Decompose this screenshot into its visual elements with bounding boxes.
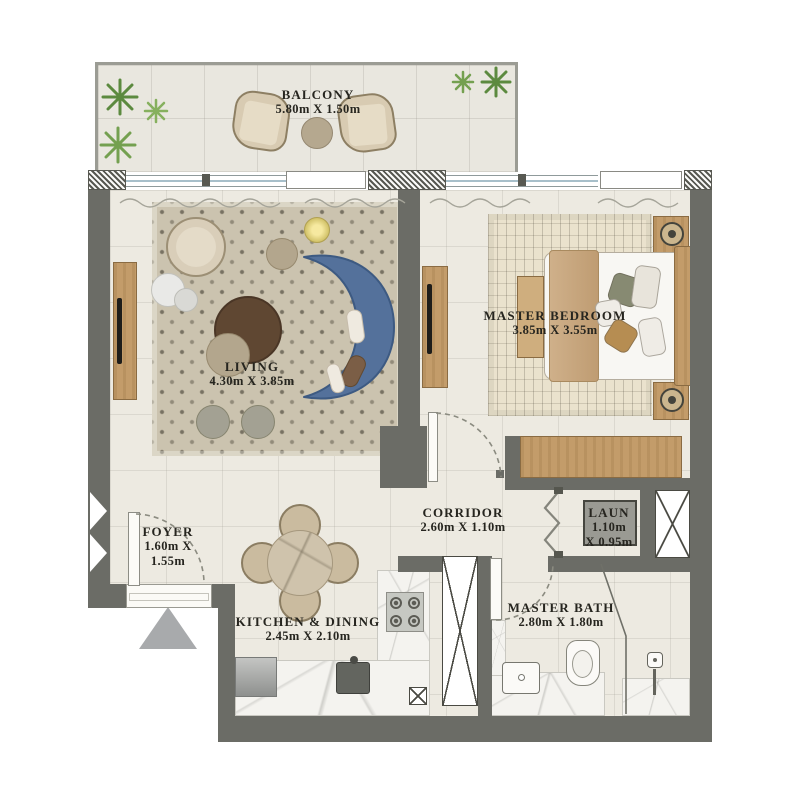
room-dims: 1.60m X xyxy=(143,539,194,554)
wardrobe xyxy=(520,436,682,478)
wall-corridor-bottom xyxy=(398,556,442,572)
shaft-x-icon xyxy=(442,556,478,706)
wall-bath-top xyxy=(548,556,690,572)
room-label-master-bedroom: MASTER BEDROOM 3.85m X 3.55m xyxy=(484,308,627,338)
room-label-living: LIVING 4.30m X 3.85m xyxy=(209,359,294,389)
entry-door xyxy=(128,512,140,586)
room-label-laundry: LAUN 1.10m X 0.95m xyxy=(585,505,632,550)
vanity-sink-icon xyxy=(502,662,540,694)
floor-plan: BALCONY 5.80m X 1.50m LIVING 4.30m X 3.8… xyxy=(0,0,800,800)
wall-niche xyxy=(90,492,107,530)
room-label-balcony: BALCONY 5.80m X 1.50m xyxy=(275,87,360,117)
room-label-foyer: FOYER 1.60m X 1.55m xyxy=(143,524,194,569)
tv-icon xyxy=(117,298,122,364)
window-panel xyxy=(286,171,366,189)
ottoman xyxy=(196,405,230,439)
side-table-marble xyxy=(266,238,298,270)
room-label-corridor: CORRIDOR 2.60m X 1.10m xyxy=(420,505,505,535)
room-name: FOYER xyxy=(143,524,194,539)
ottoman xyxy=(241,405,275,439)
room-dims: X 0.95m xyxy=(585,535,632,550)
room-label-kitchen: KITCHEN & DINING 2.45m X 2.10m xyxy=(236,614,381,644)
wall-right xyxy=(690,188,712,742)
table-lamp-icon xyxy=(668,396,676,404)
window-panel xyxy=(600,171,682,189)
plant-icon xyxy=(438,62,520,124)
entry-arrow-icon xyxy=(139,607,197,649)
wall-bottom xyxy=(218,716,712,742)
room-dims: 2.80m X 1.80m xyxy=(508,615,615,630)
wall-foyer xyxy=(88,584,128,608)
shower-floor xyxy=(622,678,690,716)
wall-bedroom-bottom xyxy=(505,478,690,490)
room-dims: 5.80m X 1.50m xyxy=(275,102,360,117)
wall-kitchen-left xyxy=(218,600,235,718)
door-stop xyxy=(496,470,504,478)
room-dims: 1.55m xyxy=(143,554,194,569)
room-name: LIVING xyxy=(209,359,294,374)
wall-hatch xyxy=(368,170,446,190)
toilet-icon xyxy=(566,640,600,686)
stove-icon xyxy=(386,592,424,632)
plant-icon xyxy=(90,66,210,178)
wall-niche xyxy=(90,534,107,572)
shaft-x-icon xyxy=(655,490,690,558)
wall-hatch xyxy=(88,170,126,190)
wall-hatch xyxy=(684,170,712,190)
bath-door xyxy=(490,558,502,620)
tv-icon xyxy=(427,284,432,354)
dining-table xyxy=(267,530,333,596)
room-name: BALCONY xyxy=(275,87,360,102)
side-table xyxy=(174,288,198,312)
shaft-x-icon xyxy=(409,687,427,705)
room-name: MASTER BATH xyxy=(508,600,615,615)
window-mullion xyxy=(202,174,210,186)
sink-icon xyxy=(336,662,370,694)
entry-threshold xyxy=(126,584,212,608)
room-name: LAUN xyxy=(585,505,632,520)
bedroom-door xyxy=(428,412,438,482)
wall-living-bedroom xyxy=(398,190,420,426)
room-name: MASTER BEDROOM xyxy=(484,308,627,323)
armchair-cushion xyxy=(176,227,216,267)
window-mullion xyxy=(518,174,526,186)
shower-head-stem xyxy=(653,669,656,695)
tv-console xyxy=(422,266,448,388)
room-dims: 3.85m X 3.55m xyxy=(484,323,627,338)
wall-living-corner xyxy=(380,426,427,488)
room-dims: 2.45m X 2.10m xyxy=(236,629,381,644)
room-name: KITCHEN & DINING xyxy=(236,614,381,629)
room-dims: 1.10m xyxy=(585,520,632,535)
room-dims: 2.60m X 1.10m xyxy=(420,520,505,535)
table-lamp-icon xyxy=(668,230,676,238)
room-dims: 4.30m X 3.85m xyxy=(209,374,294,389)
room-name: CORRIDOR xyxy=(420,505,505,520)
patio-table xyxy=(301,117,333,149)
floor-lamp-icon xyxy=(304,217,330,243)
shower-head-icon xyxy=(647,652,663,668)
fridge-icon xyxy=(235,657,277,697)
room-label-master-bath: MASTER BATH 2.80m X 1.80m xyxy=(508,600,615,630)
